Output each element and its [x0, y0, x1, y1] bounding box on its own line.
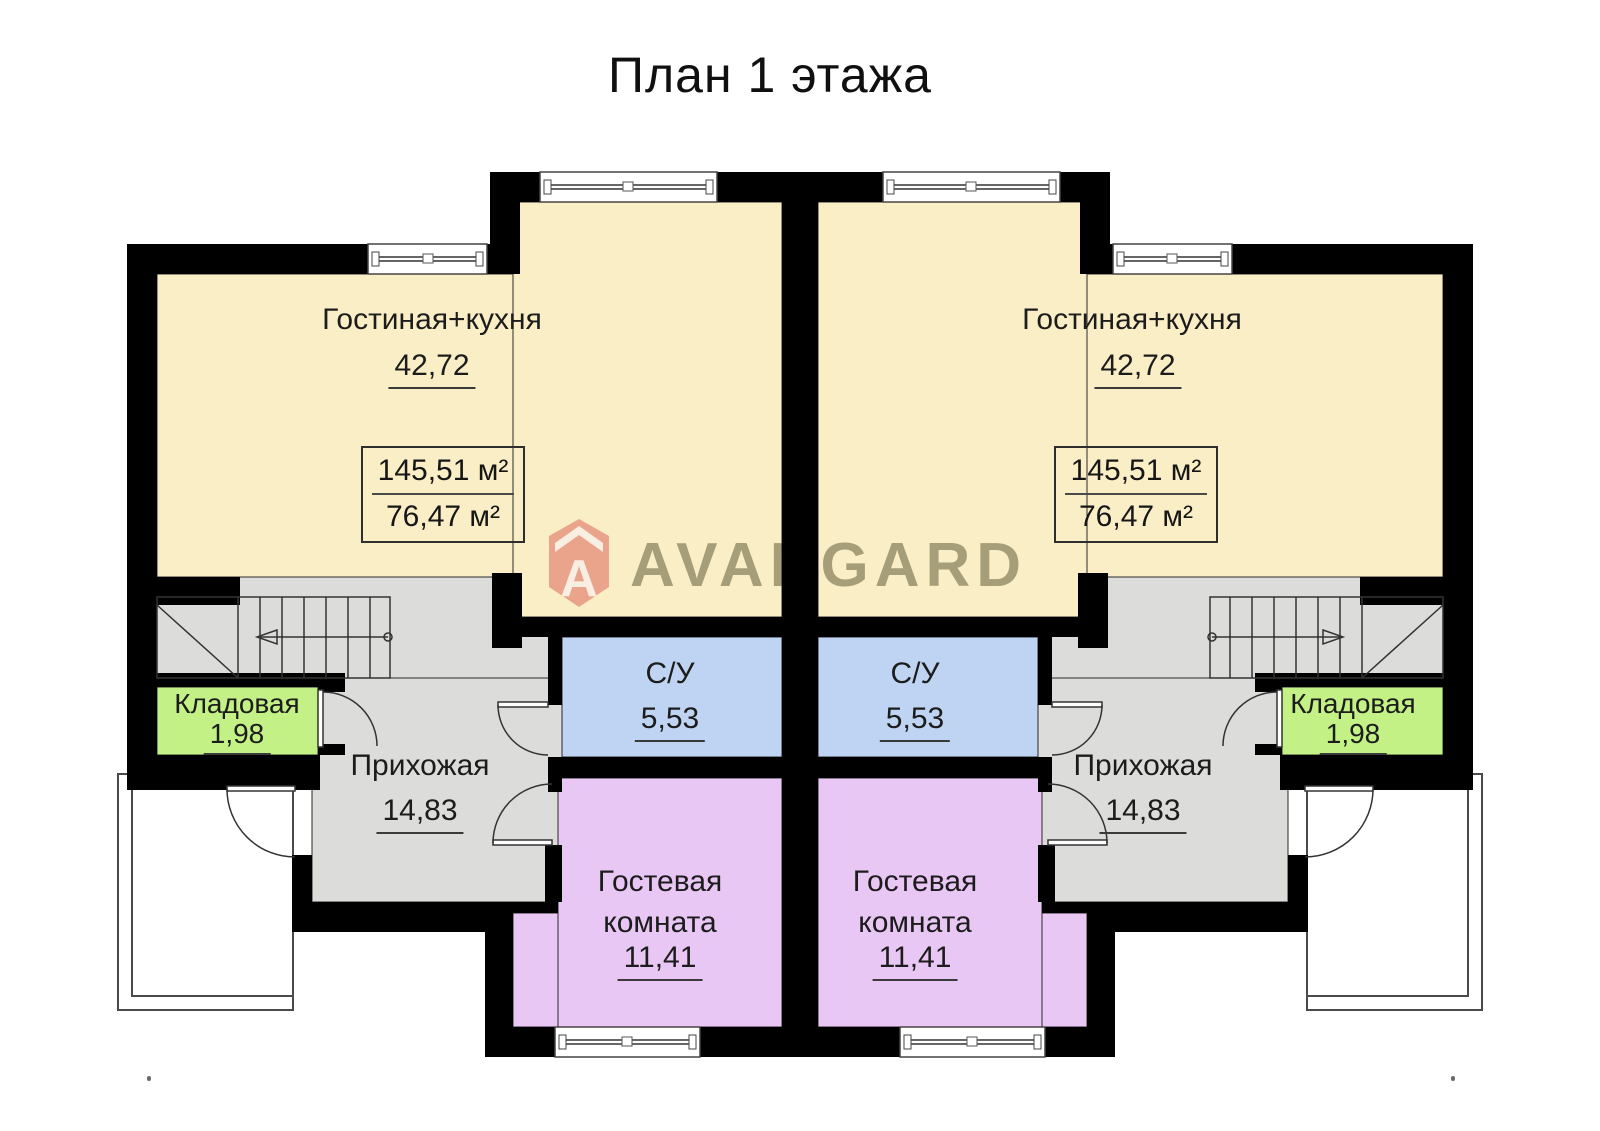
page-mark — [1451, 1076, 1455, 1081]
window — [1113, 244, 1232, 274]
room-area-bathroom-right: 5,53 — [880, 702, 950, 742]
porch-step — [132, 788, 293, 996]
wall-segment — [1288, 855, 1308, 902]
wall-segment — [1038, 757, 1052, 792]
room-label-guest-left: Гостевая комната — [553, 862, 768, 943]
room-area-guest-left: 11,41 — [618, 941, 703, 981]
wall-segment — [292, 855, 312, 902]
wall-segment — [818, 617, 1087, 637]
window — [900, 1027, 1045, 1057]
room-label-bathroom-right: С/У — [890, 657, 939, 692]
room-living-right — [818, 202, 1087, 617]
room-label-storage-right: Кладовая — [1290, 688, 1415, 720]
room-label-bathroom-left: С/У — [645, 657, 694, 692]
floorplan-page: План 1 этажа — [0, 0, 1600, 1131]
wall-segment — [548, 757, 562, 792]
wall-segment — [1443, 244, 1473, 790]
area-summary-box-left: 145,51 м² 76,47 м² — [361, 446, 525, 543]
room-label-guest-right: Гостевая комната — [808, 862, 1023, 943]
wall-segment — [127, 244, 157, 790]
porch-right — [1307, 774, 1482, 1010]
room-label-living-right: Гостиная+кухня — [1022, 303, 1242, 338]
window — [368, 244, 487, 274]
floorplan-canvas — [0, 0, 1600, 1131]
living-area-value: 76,47 м² — [363, 497, 523, 536]
wall-segment — [513, 617, 782, 637]
wall-segment — [1038, 637, 1052, 705]
wall-segment — [1042, 902, 1087, 913]
window — [883, 172, 1060, 202]
window — [555, 1027, 700, 1057]
page-mark — [147, 1076, 151, 1081]
wall-segment — [157, 577, 240, 605]
room-area-bathroom-left: 5,53 — [635, 702, 705, 742]
room-label-hallway-left: Прихожая — [350, 749, 489, 784]
room-living-left — [513, 202, 782, 617]
wall-segment — [127, 755, 320, 790]
wall-segment — [513, 902, 558, 913]
room-label-hallway-right: Прихожая — [1073, 749, 1212, 784]
wall-segment — [1087, 902, 1308, 932]
room-area-storage-right: 1,98 — [1320, 718, 1387, 755]
wall-segment — [157, 673, 345, 687]
porch-step — [1307, 788, 1468, 996]
wall-segment — [1038, 845, 1055, 902]
room-area-storage-left: 1,98 — [204, 718, 271, 755]
room-label-living-left: Гостиная+кухня — [322, 303, 542, 338]
room-area-living-right: 42,72 — [1094, 349, 1181, 389]
wall-segment — [548, 637, 562, 705]
wall-segment — [292, 902, 513, 932]
room-guest-left — [513, 913, 558, 1027]
room-area-hallway-left: 14,83 — [376, 794, 463, 834]
total-area-value: 145,51 м² — [372, 451, 515, 495]
wall-segment — [1255, 673, 1443, 687]
total-area-value: 145,51 м² — [1065, 451, 1208, 495]
room-area-hallway-right: 14,83 — [1099, 794, 1186, 834]
area-summary-box-right: 145,51 м² 76,47 м² — [1054, 446, 1218, 543]
room-guest-right — [1042, 913, 1087, 1027]
wall-segment — [562, 757, 782, 778]
porch-left — [118, 774, 293, 1010]
window — [540, 172, 717, 202]
room-area-living-left: 42,72 — [388, 349, 475, 389]
wall-segment — [1360, 577, 1443, 605]
wall-segment — [818, 757, 1038, 778]
room-label-storage-left: Кладовая — [174, 688, 299, 720]
living-area-value: 76,47 м² — [1056, 497, 1216, 536]
wall-segment — [1280, 755, 1473, 790]
room-area-guest-right: 11,41 — [873, 941, 958, 981]
